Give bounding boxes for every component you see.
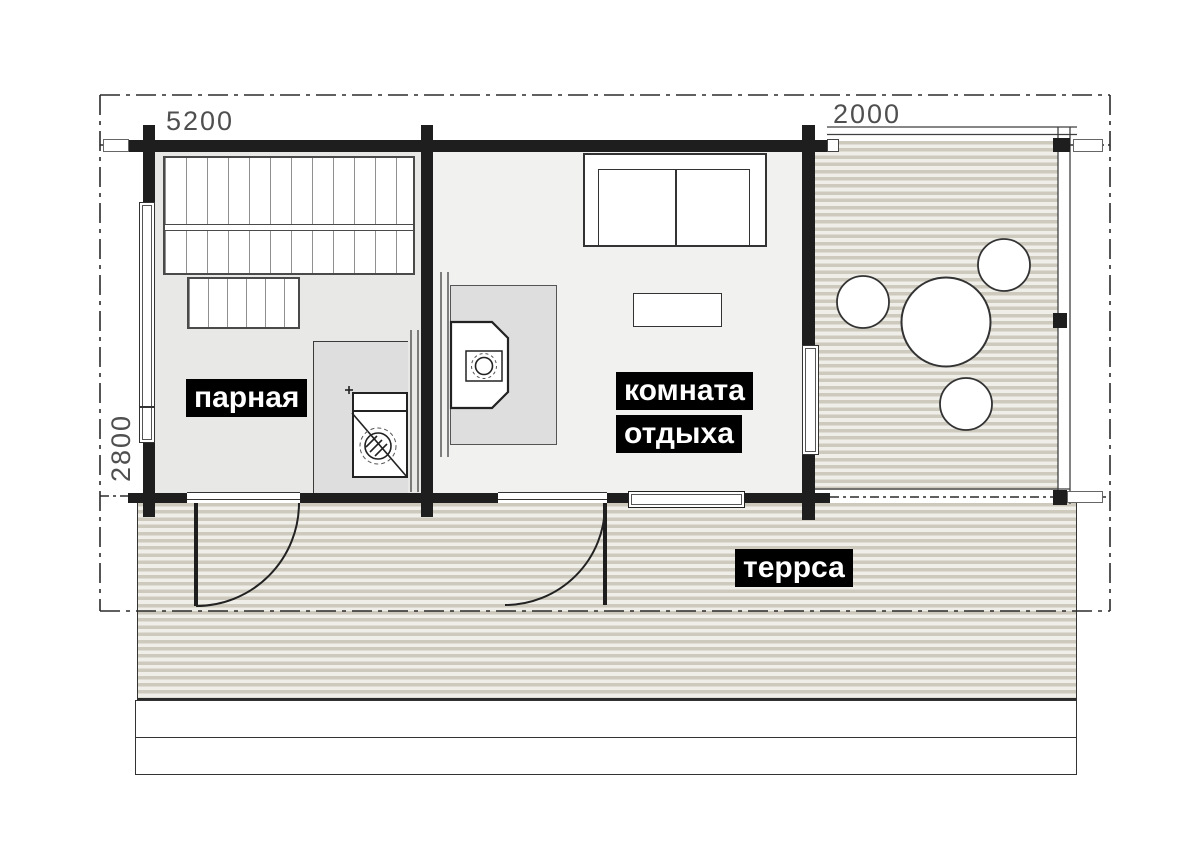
boundary-bracket-top-right [1073, 139, 1103, 152]
label-terrace: террса [735, 549, 853, 587]
label-steam-room: парная [186, 379, 307, 417]
door-swing-arc [196, 503, 299, 606]
terrace-post-top-right [1053, 138, 1070, 152]
wall-bottom-seg1 [128, 493, 187, 503]
terrace-post-mid-right [1053, 313, 1067, 328]
terrace-chair [940, 378, 992, 430]
window-sash-divider [140, 406, 154, 408]
wall-top [128, 140, 827, 152]
window-bottom [628, 491, 745, 508]
door-opening-lounge [498, 492, 607, 500]
terrace-table-set [837, 239, 1030, 430]
boundary-bracket-top-left [103, 139, 129, 152]
sauna-heater-symbol [345, 386, 407, 477]
wall-bottom-seg2 [300, 493, 498, 503]
dimension-left: 2800 [106, 414, 137, 482]
wall-bottom-seg3 [607, 493, 628, 503]
terrace-chair [837, 276, 889, 328]
dimension-top-right: 2000 [833, 99, 901, 130]
door-lounge [505, 503, 605, 605]
door-steam-room [196, 503, 299, 606]
floor-plan: 5200 2000 2800 парная комната отдыха тер… [0, 0, 1200, 858]
window-frame [142, 205, 152, 440]
wall-middle [421, 125, 433, 517]
door-opening-steam-room [187, 492, 300, 500]
wall-right-upper [802, 125, 815, 345]
wall-end-notch [827, 139, 839, 152]
boundary-bracket-bottom-right [1067, 491, 1103, 503]
window-frame [805, 348, 816, 452]
terrace-post-bottom-right [1053, 490, 1067, 505]
door-swing-arc [505, 505, 605, 605]
wall-bottom-seg4 [745, 493, 830, 503]
terrace-chair [978, 239, 1030, 291]
window-frame [631, 494, 742, 505]
label-lounge-line1: комната [616, 372, 753, 410]
wood-stove-symbol [451, 322, 508, 408]
dimension-top-left: 5200 [166, 106, 234, 137]
window-left [139, 202, 155, 443]
window-right [802, 345, 819, 455]
label-lounge-line2: отдыха [616, 415, 742, 453]
wall-right-lower [802, 455, 815, 520]
terrace-table [902, 278, 991, 367]
